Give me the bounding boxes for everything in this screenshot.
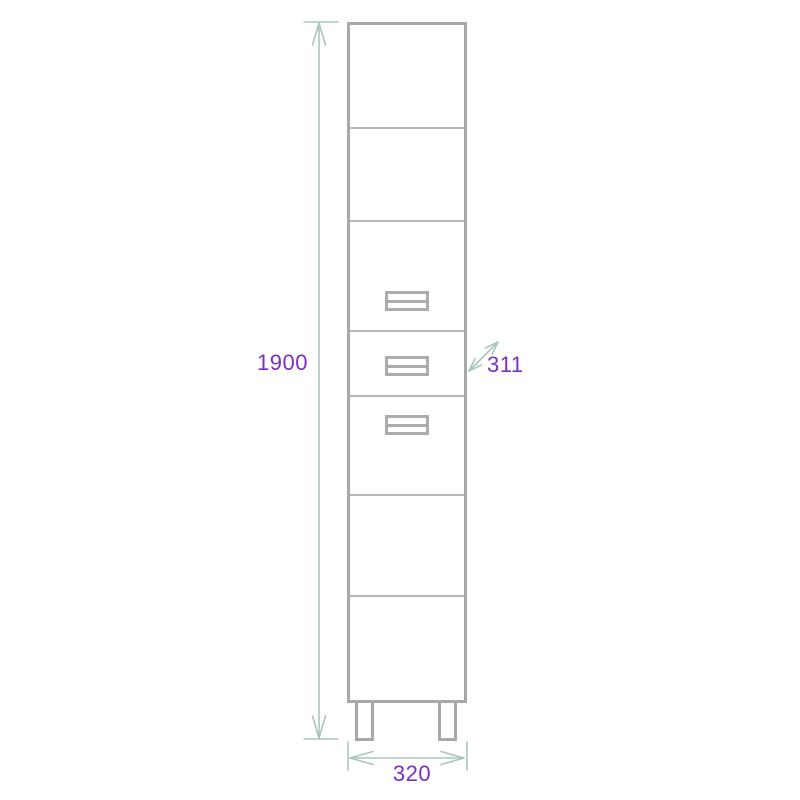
shelf-divider-2 [350,220,464,222]
shelf-divider-3 [350,330,464,332]
height-dimension-arrow [304,22,338,739]
shelf-divider-5 [350,494,464,496]
drawer-handle-3 [385,415,429,435]
drawer-handle-bar [388,424,426,427]
shelf-divider-1 [350,127,464,129]
drawer-handle-bar [388,365,426,368]
drawer-handle-bar [388,300,426,303]
shelf-divider-6 [350,595,464,597]
cabinet-outline [347,22,467,703]
shelf-divider-4 [350,395,464,397]
cabinet-leg-right [438,699,457,741]
drawer-handle-2 [385,356,429,376]
height-dimension-label: 1900 [254,351,308,375]
cabinet-leg-left [355,699,374,741]
drawing-canvas: 1900 311 320 [0,0,800,800]
width-dimension-label: 320 [377,762,447,786]
drawer-handle-1 [385,291,429,311]
depth-dimension-label: 311 [487,353,524,377]
